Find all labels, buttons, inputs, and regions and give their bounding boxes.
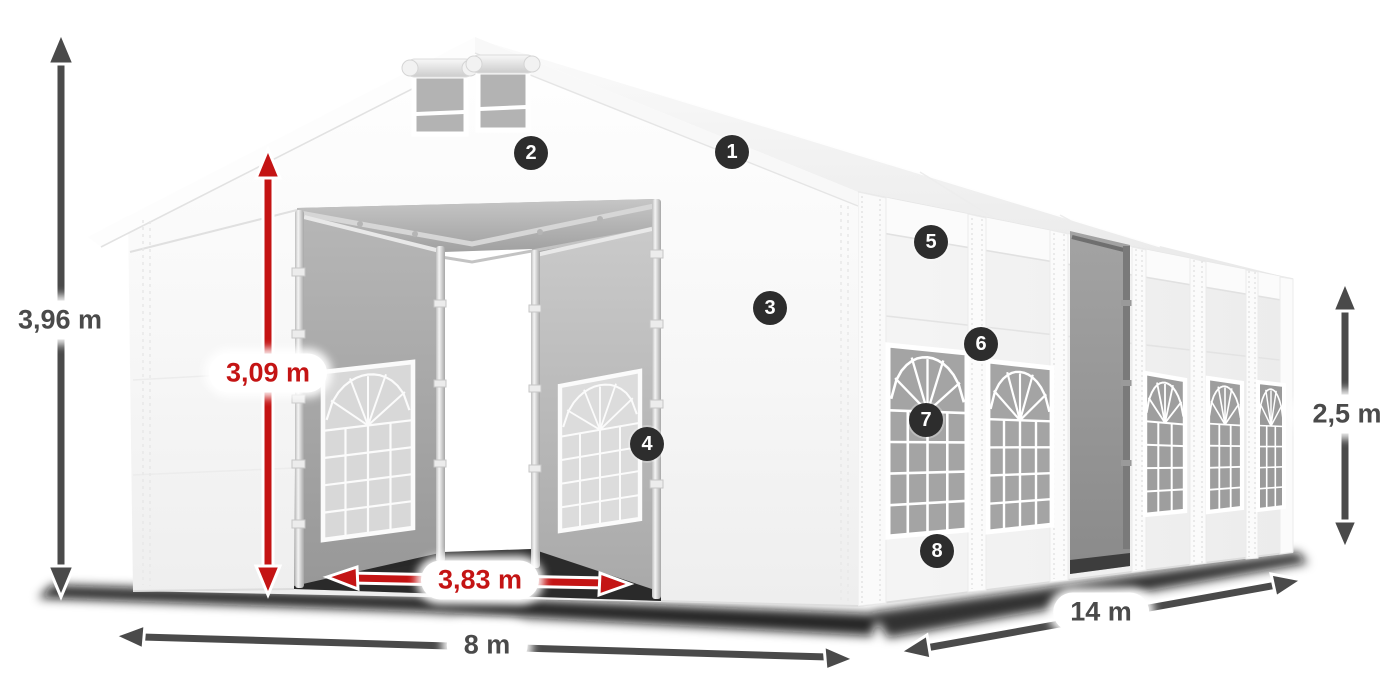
dimension-label-side-length: 14 m <box>1053 592 1149 631</box>
dimension-label-entrance-height: 3,09 m <box>209 353 327 392</box>
callout-badge-7[interactable]: 7 <box>909 403 943 437</box>
side-window-5 <box>1258 382 1284 510</box>
callout-badge-8[interactable]: 8 <box>920 534 954 568</box>
left-door-mesh-window <box>323 362 413 540</box>
gable-vent-2 <box>466 55 540 130</box>
callout-badge-5[interactable]: 5 <box>914 225 948 259</box>
dimension-label-entrance-width: 3,83 m <box>421 560 539 599</box>
gable-vent-1 <box>402 59 478 134</box>
tent-illustration <box>0 0 1400 700</box>
side-window-3 <box>1145 373 1185 515</box>
callout-badge-1[interactable]: 1 <box>715 135 749 169</box>
dimension-label-side-height: 2,5 m <box>1295 394 1398 433</box>
side-window-1 <box>888 345 967 537</box>
callout-badge-6[interactable]: 6 <box>964 327 998 361</box>
dimension-label-total-height: 3,96 m <box>1 300 119 339</box>
tent-dimensions-diagram: 3,96 m 3,09 m 3,83 m 8 m 14 m 2,5 m 1 2 … <box>0 0 1400 700</box>
dimension-label-front-width: 8 m <box>447 625 528 664</box>
side-door-pole <box>1123 246 1130 549</box>
side-door-opening <box>1070 231 1132 574</box>
side-window-4 <box>1208 378 1242 512</box>
callout-badge-2[interactable]: 2 <box>514 136 548 170</box>
callout-badge-4[interactable]: 4 <box>630 427 664 461</box>
side-window-2 <box>988 361 1052 532</box>
see-through-gap <box>444 249 532 552</box>
callout-badge-3[interactable]: 3 <box>753 291 787 325</box>
right-door-mesh-window <box>560 371 640 531</box>
